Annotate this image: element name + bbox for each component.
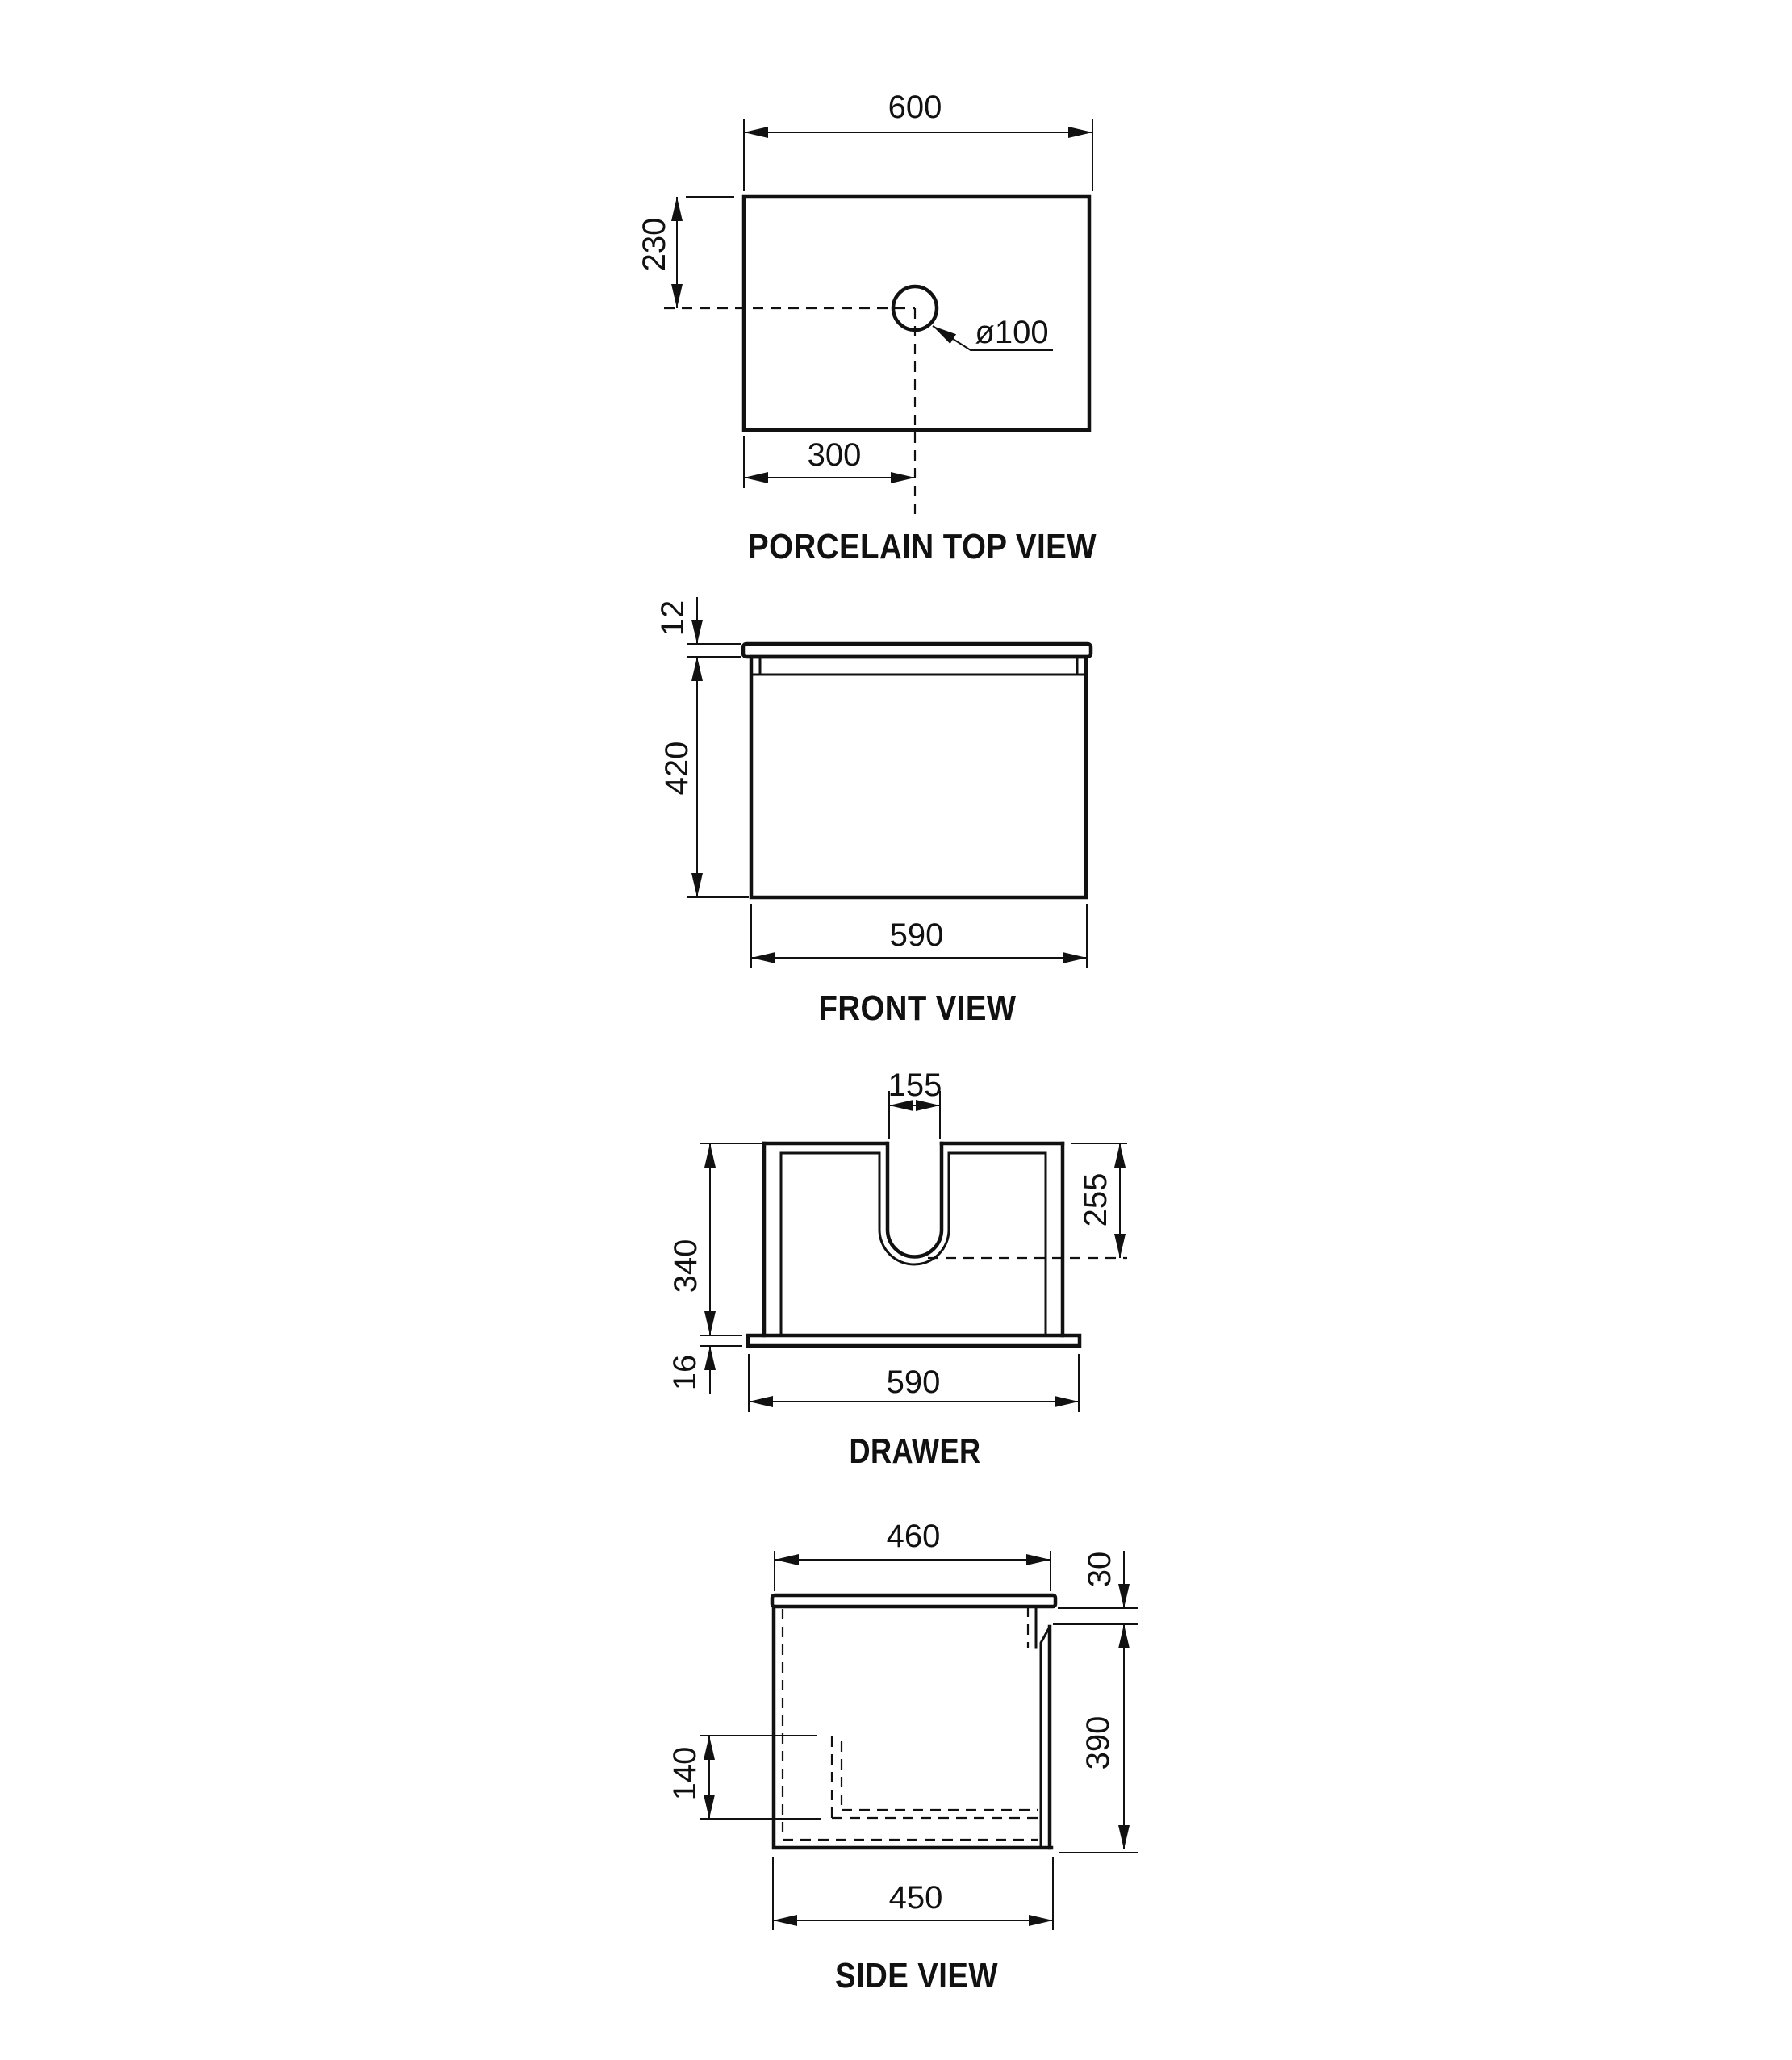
side-view: 460 140 30 (667, 1519, 1138, 1995)
dim-label-420: 420 (659, 742, 695, 796)
dim-label-16: 16 (667, 1355, 703, 1391)
view-title-top: PORCELAIN TOP VIEW (748, 527, 1097, 566)
dim-label-30: 30 (1082, 1552, 1117, 1588)
dim-body-depth: 450 (773, 1857, 1053, 1930)
drawer-body (748, 1143, 1127, 1346)
dim-label-300: 300 (808, 437, 862, 473)
countertop-slab-side (772, 1595, 1055, 1607)
dim-drawer-height: 340 (668, 1143, 762, 1335)
dim-cabinet-width: 590 (751, 904, 1087, 968)
dim-label-340: 340 (668, 1239, 704, 1293)
dim-top-width: 600 (744, 90, 1092, 191)
hole-centerlines (664, 308, 915, 516)
dim-front-gap: 30 (1053, 1551, 1138, 1624)
countertop-slab (743, 644, 1091, 657)
cabinet-body (751, 657, 1086, 897)
dim-label-450: 450 (889, 1880, 943, 1916)
view-title-side: SIDE VIEW (835, 1956, 998, 1995)
dim-notch-width: 155 (888, 1068, 942, 1139)
cabinet-outline-side (774, 1607, 1051, 1848)
dim-drawer-width: 590 (749, 1354, 1079, 1412)
drawer-view: 155 340 255 16 590 DRAWER (667, 1068, 1127, 1471)
dim-label-390: 390 (1080, 1716, 1116, 1770)
dim-hole-from-left: 300 (744, 436, 915, 488)
dim-notch-depth: 255 (1071, 1143, 1127, 1258)
dim-label-230: 230 (637, 218, 672, 272)
base-plate (748, 1335, 1080, 1346)
dim-label-dia100: ø100 (975, 315, 1048, 350)
dim-slab-thickness: 12 (655, 597, 741, 657)
dim-label-140: 140 (667, 1747, 703, 1801)
dim-label-600: 600 (888, 90, 942, 125)
dim-top-depth: 460 (775, 1519, 1051, 1591)
front-view: 12 420 590 FRONT VIEW (655, 597, 1091, 1028)
dim-label-590: 590 (890, 917, 944, 953)
dim-label-12: 12 (655, 600, 691, 637)
dim-base-thickness: 16 (667, 1335, 742, 1394)
dim-label-460: 460 (887, 1519, 941, 1554)
view-title-drawer: DRAWER (850, 1431, 981, 1471)
dim-cabinet-height: 420 (659, 657, 749, 897)
u-notch-outer (879, 1153, 949, 1264)
drawer-gap-groove (751, 657, 1086, 675)
dim-body-height: 390 (1059, 1624, 1138, 1853)
drawing-sheet: 600 230 ø100 300 PORCELAIN TOP VIEW (0, 0, 1792, 2060)
dim-hole-from-top: 230 (637, 197, 734, 308)
hole-diameter-callout: ø100 (933, 315, 1053, 350)
u-notch-inner (888, 1143, 942, 1256)
dim-label-255: 255 (1078, 1173, 1113, 1227)
dim-inner-height: 140 (667, 1736, 821, 1819)
dim-label-155: 155 (888, 1068, 942, 1103)
view-title-front: FRONT VIEW (819, 988, 1017, 1028)
dim-label-590: 590 (887, 1364, 941, 1400)
porcelain-top-view: 600 230 ø100 300 PORCELAIN TOP VIEW (637, 90, 1097, 566)
porcelain-top-outline (744, 197, 1089, 430)
hidden-drawer-lines (783, 1607, 1038, 1840)
technical-drawing: 600 230 ø100 300 PORCELAIN TOP VIEW (0, 0, 1792, 2060)
